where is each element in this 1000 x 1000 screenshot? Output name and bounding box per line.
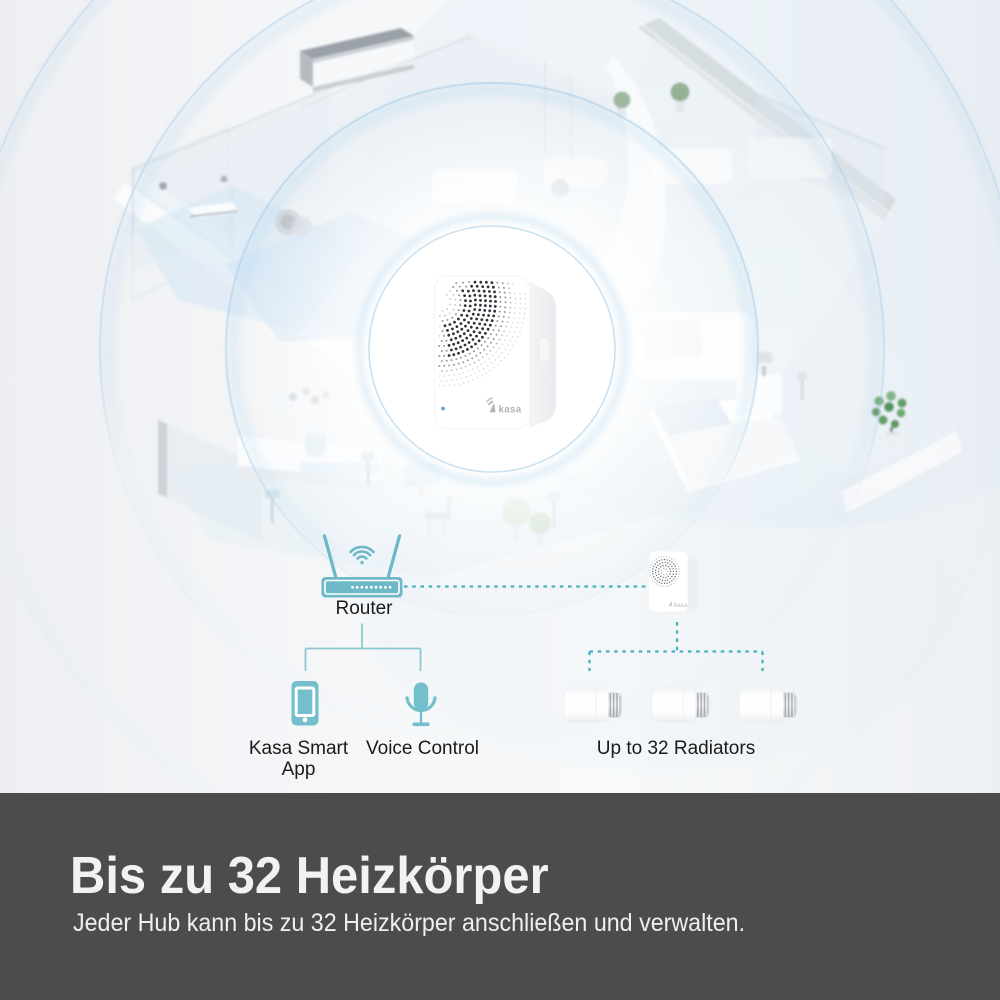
svg-text:kasa: kasa (674, 603, 688, 609)
svg-text:kasa: kasa (499, 405, 522, 416)
